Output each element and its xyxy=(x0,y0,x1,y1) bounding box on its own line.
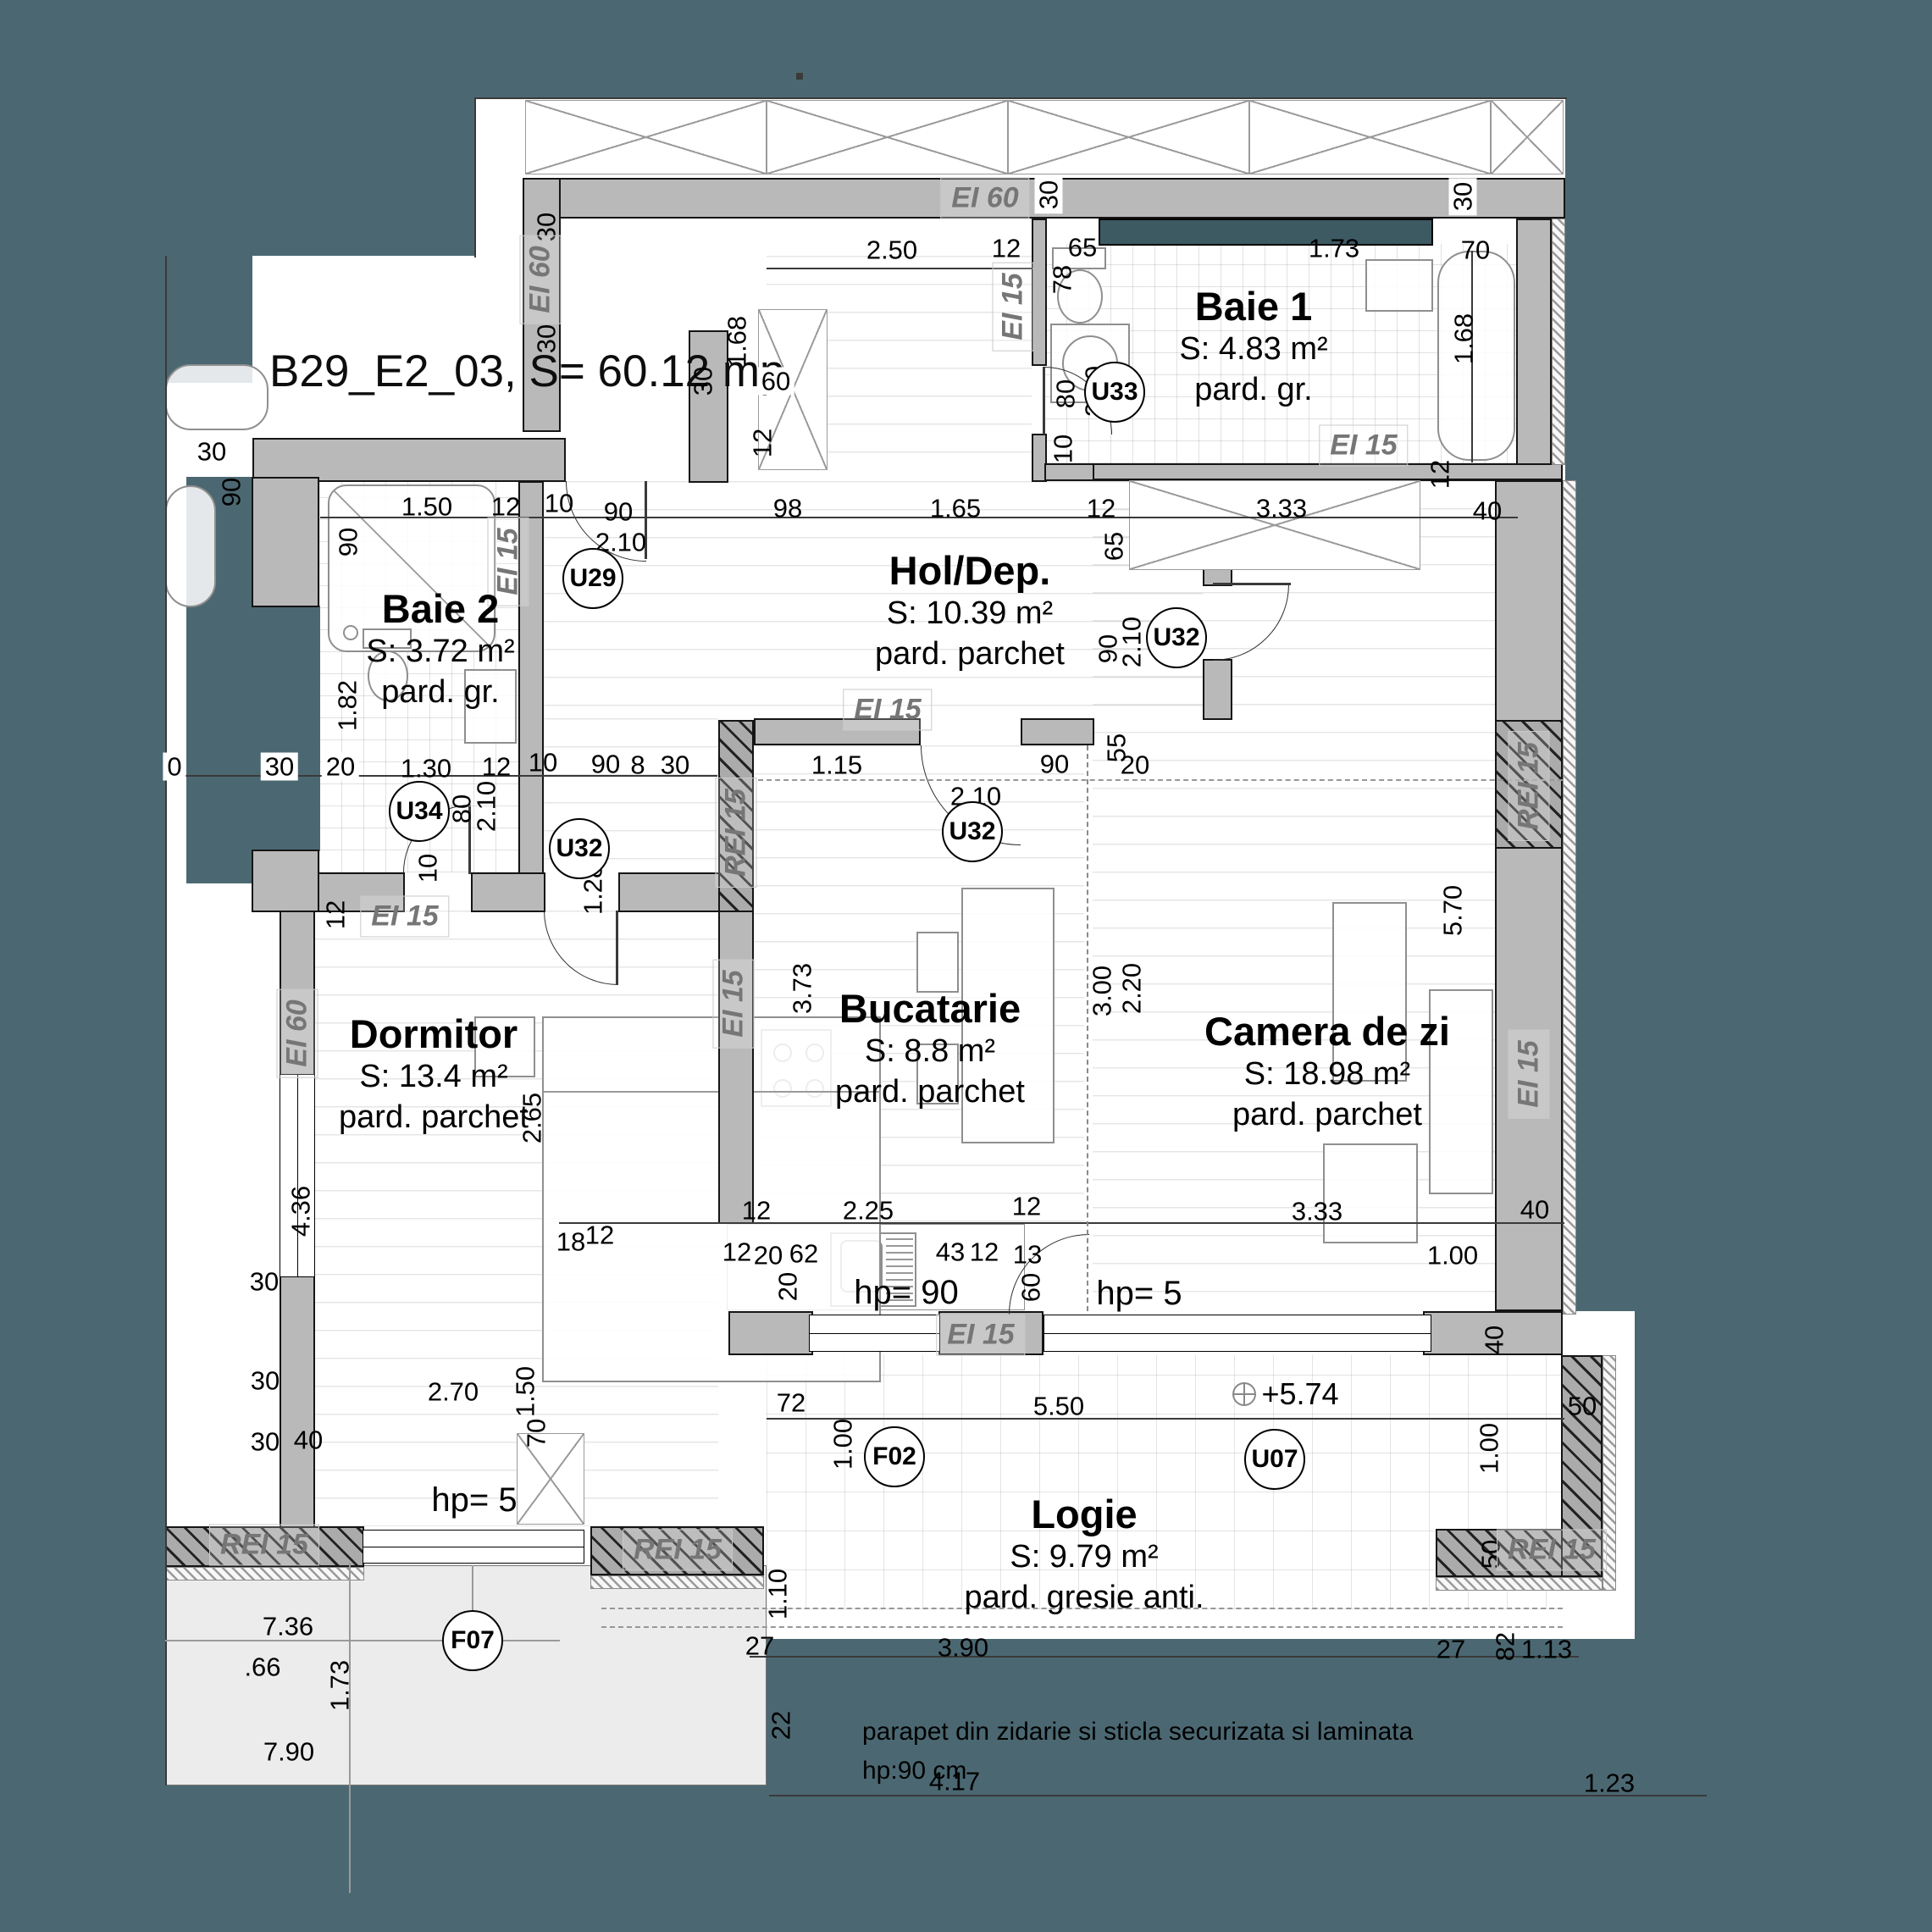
room-name: Dormitor xyxy=(339,1011,529,1057)
labels-layer: 30302.50123065781.7370301.681.6830601280… xyxy=(0,0,1932,1932)
dim-label: 1.23 xyxy=(1584,1770,1635,1796)
room-label: Hol/Dep.S: 10.39 m²pard. parchet xyxy=(875,548,1065,674)
wall-rating-label: REI 15 xyxy=(1509,731,1550,841)
floor-plan-canvas: B29_E2_03, S= 60.12 mp parapet din zidar… xyxy=(0,0,1932,1932)
wall-rating-label: EI 15 xyxy=(843,689,932,731)
dim-label: 30 xyxy=(1035,176,1063,213)
dim-label: 12 xyxy=(323,900,349,929)
room-label: BucatarieS: 8.8 m²pard. parchet xyxy=(835,986,1025,1112)
room-label: LogieS: 9.79 m²pard. gresie anti. xyxy=(964,1492,1204,1618)
room-area: S: 13.4 m² xyxy=(339,1057,529,1098)
dim-label: 10 xyxy=(529,750,557,776)
dim-label: 4.17 xyxy=(929,1769,980,1795)
room-area: S: 10.39 m² xyxy=(875,594,1065,634)
dim-label: 1.30 xyxy=(401,756,451,782)
wall-rating-label: REI 15 xyxy=(1497,1530,1607,1571)
room-name: Logie xyxy=(964,1492,1204,1537)
door-tag: U33 xyxy=(1084,362,1145,423)
dim-label: 3.33 xyxy=(1256,495,1307,522)
door-tag: U32 xyxy=(1146,607,1207,668)
dim-label: 12 xyxy=(1012,1193,1041,1220)
room-floor: pard. gr. xyxy=(1179,370,1327,411)
dim-label: 12 xyxy=(722,1239,751,1265)
dim-label: 90 xyxy=(1040,751,1069,778)
dim-label: 90 xyxy=(335,528,362,556)
room-area: S: 3.72 m² xyxy=(366,632,514,673)
dim-label: 12 xyxy=(1427,460,1453,489)
room-name: Baie 1 xyxy=(1179,284,1327,329)
room-label: DormitorS: 13.4 m²pard. parchet xyxy=(339,1011,529,1138)
room-name: Baie 2 xyxy=(366,586,514,632)
door-tag: F07 xyxy=(442,1610,503,1671)
door-tag: U07 xyxy=(1244,1429,1305,1490)
door-tag: U29 xyxy=(562,548,623,609)
wall-rating-label: EI 15 xyxy=(1509,1029,1550,1118)
dim-label: 4.36 xyxy=(288,1186,314,1237)
dim-label: 90 xyxy=(591,751,620,778)
dim-label: 10 xyxy=(415,854,441,883)
dim-label: 65 xyxy=(1101,532,1127,561)
dim-label: 5.70 xyxy=(1440,885,1466,936)
dim-label: 2.70 xyxy=(428,1379,479,1405)
dim-label: 12 xyxy=(970,1239,999,1265)
room-label: Baie 1S: 4.83 m²pard. gr. xyxy=(1179,284,1327,410)
dim-label: 50 xyxy=(1568,1393,1597,1420)
wall-rating-label: EI 15 xyxy=(993,262,1034,351)
dim-label: 3.33 xyxy=(1292,1199,1342,1225)
room-area: S: 4.83 m² xyxy=(1179,329,1327,370)
dim-label: 2.50 xyxy=(866,237,917,263)
room-area: S: 18.98 m² xyxy=(1204,1055,1450,1095)
door-tag: U32 xyxy=(942,801,1003,862)
dim-label: 1.82 xyxy=(335,680,361,731)
dim-label: 2.10 xyxy=(473,781,500,832)
dim-label: 1.10 xyxy=(765,1569,791,1619)
room-name: Bucatarie xyxy=(835,986,1025,1032)
room-name: Hol/Dep. xyxy=(875,548,1065,594)
room-floor: pard. parchet xyxy=(339,1098,529,1138)
dim-label: 20 xyxy=(754,1243,783,1269)
dim-label: 1.65 xyxy=(930,495,981,522)
wall-rating-label: REI 15 xyxy=(623,1530,733,1571)
dim-label: 27 xyxy=(1437,1636,1465,1663)
door-tag: F02 xyxy=(864,1426,925,1487)
dim-label: 7.36 xyxy=(263,1614,313,1640)
dim-label: 1.15 xyxy=(811,752,862,778)
dim-label: 0 xyxy=(163,753,185,781)
dim-label: 30 xyxy=(534,324,560,353)
wall-rating-label: EI 15 xyxy=(936,1315,1025,1356)
room-floor: pard. gresie anti. xyxy=(964,1578,1204,1619)
dim-label: 40 xyxy=(1473,498,1502,524)
room-floor: pard. gr. xyxy=(366,673,514,713)
dim-label: 3.00 xyxy=(1089,966,1115,1016)
dim-label: 55 xyxy=(1104,733,1130,762)
dim-label: 7.90 xyxy=(263,1739,314,1765)
wall-rating-label: REI 15 xyxy=(716,778,757,888)
dim-label: 22 xyxy=(768,1711,794,1740)
dim-label: 30 xyxy=(197,439,226,465)
dim-label: 1.50 xyxy=(401,494,452,520)
dim-label: 1.00 xyxy=(1476,1423,1503,1474)
dim-label: 80 xyxy=(1053,379,1079,408)
dim-label: 30 xyxy=(1449,178,1477,215)
room-floor: pard. parchet xyxy=(1204,1095,1450,1136)
dim-label: 1.73 xyxy=(327,1660,353,1711)
wall-rating-label: EI 15 xyxy=(713,959,755,1048)
dim-label: 40 xyxy=(1520,1197,1549,1223)
dim-label: 82 xyxy=(1492,1632,1519,1661)
dim-label: 43 xyxy=(936,1239,965,1265)
dim-label: 1.68 xyxy=(1451,313,1477,364)
dim-label: 13 xyxy=(1013,1242,1042,1268)
dim-label: 72 xyxy=(777,1390,805,1416)
room-floor: pard. parchet xyxy=(875,634,1065,675)
dim-label: 12 xyxy=(750,429,776,457)
dim-label: 5.50 xyxy=(1033,1393,1084,1420)
door-tag: U32 xyxy=(549,818,610,879)
wall-rating-label: EI 60 xyxy=(940,178,1029,219)
room-label: Baie 2S: 3.72 m²pard. gr. xyxy=(366,586,514,712)
dim-label: hp= 90 xyxy=(854,1276,958,1309)
door-tag: U34 xyxy=(389,781,450,842)
dim-label: hp= 5 xyxy=(1096,1276,1182,1310)
dim-label: 18 xyxy=(556,1229,585,1255)
dim-label: 1.73 xyxy=(1309,235,1359,262)
dim-label: 60 xyxy=(1018,1273,1044,1302)
dim-label: 30 xyxy=(690,367,717,396)
dim-label: 12 xyxy=(1087,495,1115,522)
dim-label: 70 xyxy=(523,1419,550,1448)
room-area: S: 9.79 m² xyxy=(964,1537,1204,1578)
dim-label: 12 xyxy=(482,754,511,780)
dim-label: 20 xyxy=(775,1272,801,1301)
dim-label: 98 xyxy=(773,495,802,522)
room-floor: pard. parchet xyxy=(835,1072,1025,1113)
wall-rating-label: EI 15 xyxy=(1319,425,1408,467)
dim-label: 12 xyxy=(992,235,1021,262)
dim-label: 70 xyxy=(1461,237,1490,263)
dim-label: 62 xyxy=(789,1241,818,1267)
room-area: S: 8.8 m² xyxy=(835,1032,1025,1072)
dim-label: 90 xyxy=(219,478,245,507)
dim-label: 30 xyxy=(251,1368,280,1394)
dim-label: 1.13 xyxy=(1521,1636,1572,1663)
room-label: Camera de ziS: 18.98 m²pard. parchet xyxy=(1204,1009,1450,1135)
dim-label: 30 xyxy=(250,1269,279,1295)
wall-rating-label: EI 15 xyxy=(360,896,449,938)
dim-label: 2.25 xyxy=(843,1198,894,1224)
dim-label: 30 xyxy=(661,752,689,778)
wall-rating-label: EI 60 xyxy=(277,988,318,1077)
dim-label: 2.20 xyxy=(1119,963,1145,1014)
dim-label: 20 xyxy=(322,753,359,781)
dim-label: hp= 5 xyxy=(431,1483,517,1517)
dim-label: 78 xyxy=(1049,265,1076,294)
dim-label: 8 xyxy=(630,752,645,778)
dim-label: 40 xyxy=(1481,1326,1508,1354)
dim-label: 1.00 xyxy=(830,1419,856,1470)
wall-rating-label: REI 15 xyxy=(209,1525,319,1566)
dim-label: 60 xyxy=(757,368,794,396)
dim-label: 1.50 xyxy=(512,1366,539,1417)
dim-label: 90 xyxy=(604,499,633,525)
dim-label: 1.00 xyxy=(1427,1243,1478,1269)
dim-label: 10 xyxy=(545,490,573,517)
dim-label: 65 xyxy=(1068,235,1097,261)
dim-label: 1.68 xyxy=(724,316,750,367)
dim-label: 12 xyxy=(742,1198,771,1224)
dim-label: 30 xyxy=(251,1429,280,1455)
wall-rating-label: EI 60 xyxy=(520,235,562,324)
dim-label: 3.90 xyxy=(938,1635,988,1661)
dim-label: 10 xyxy=(1050,435,1077,463)
dim-label: 3.73 xyxy=(789,963,816,1014)
room-name: Camera de zi xyxy=(1204,1009,1450,1055)
dim-label: 40 xyxy=(294,1427,323,1453)
dim-label: 30 xyxy=(261,753,298,781)
dim-label: 27 xyxy=(745,1633,774,1659)
dim-label: 12 xyxy=(585,1222,614,1248)
dim-label: +5.74 xyxy=(1261,1379,1338,1409)
dim-label: .66 xyxy=(244,1654,280,1680)
dim-label: 12 xyxy=(491,494,520,520)
dim-label: 2.10 xyxy=(1119,617,1145,667)
